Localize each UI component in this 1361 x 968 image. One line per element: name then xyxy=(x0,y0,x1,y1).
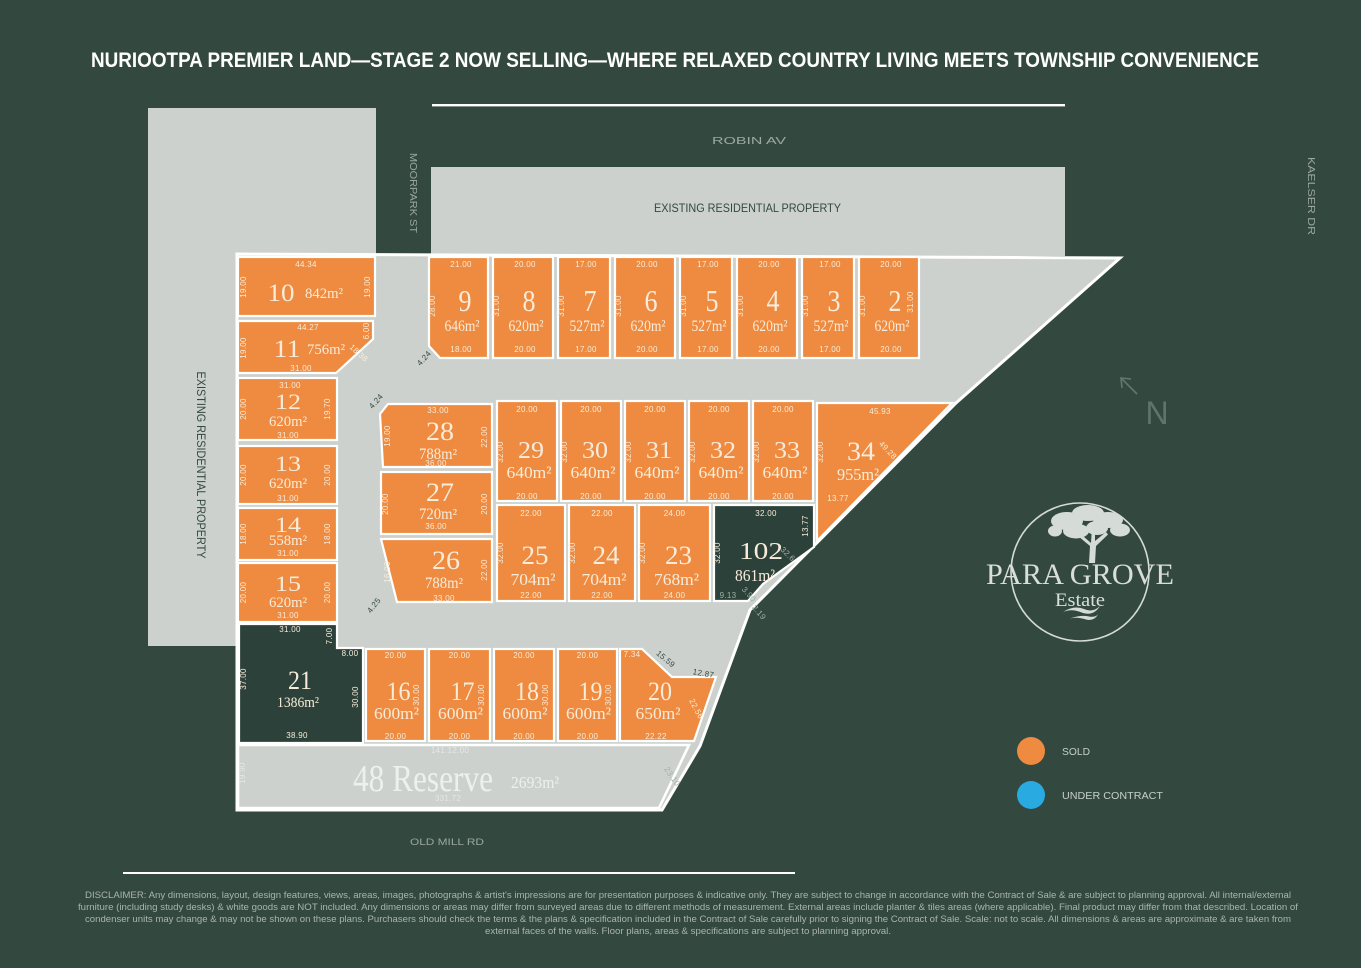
svg-text:20.00: 20.00 xyxy=(239,398,248,420)
svg-text:20.00: 20.00 xyxy=(758,345,780,354)
svg-text:NURIOOTPA PREMIER LAND—STAGE 2: NURIOOTPA PREMIER LAND—STAGE 2 NOW SELLI… xyxy=(91,48,1259,72)
svg-text:20.00: 20.00 xyxy=(480,493,489,515)
svg-text:19: 19 xyxy=(579,677,603,706)
svg-text:37.00: 37.00 xyxy=(239,668,248,690)
svg-text:640m²: 640m² xyxy=(699,463,744,482)
svg-text:31.00: 31.00 xyxy=(290,364,312,373)
svg-text:20.00: 20.00 xyxy=(239,464,248,486)
svg-text:32.00: 32.00 xyxy=(496,441,505,463)
svg-text:10: 10 xyxy=(268,280,295,307)
svg-text:31.00: 31.00 xyxy=(736,295,745,317)
svg-text:20.00: 20.00 xyxy=(516,405,538,414)
svg-text:620m²: 620m² xyxy=(269,476,308,492)
svg-text:17: 17 xyxy=(451,677,475,706)
svg-text:20.00: 20.00 xyxy=(449,732,471,741)
svg-text:19.00: 19.00 xyxy=(383,425,392,447)
svg-text:28: 28 xyxy=(426,417,454,446)
svg-text:13: 13 xyxy=(275,451,301,476)
svg-text:31.00: 31.00 xyxy=(492,295,501,317)
svg-text:32.00: 32.00 xyxy=(752,441,761,463)
svg-text:32.00: 32.00 xyxy=(688,441,697,463)
svg-text:704m²: 704m² xyxy=(511,570,556,589)
svg-text:24.00: 24.00 xyxy=(664,591,686,600)
svg-text:527m²: 527m² xyxy=(814,318,849,335)
svg-text:36.00: 36.00 xyxy=(425,459,447,468)
svg-text:36.00: 36.00 xyxy=(425,522,447,531)
svg-text:24.00: 24.00 xyxy=(664,509,686,518)
svg-text:31.00: 31.00 xyxy=(277,494,299,503)
svg-text:527m²: 527m² xyxy=(692,318,727,335)
svg-text:29: 29 xyxy=(518,438,544,464)
svg-text:27: 27 xyxy=(426,478,454,507)
svg-text:768m²: 768m² xyxy=(654,570,699,589)
svg-text:33.00: 33.00 xyxy=(427,406,449,415)
svg-text:22.22: 22.22 xyxy=(645,732,667,741)
svg-text:640m²: 640m² xyxy=(507,463,552,482)
svg-text:32.00: 32.00 xyxy=(560,441,569,463)
svg-text:20.00: 20.00 xyxy=(644,405,666,414)
svg-text:600m²: 600m² xyxy=(566,704,611,723)
svg-text:external faces of the walls. F: external faces of the walls. Floor plans… xyxy=(485,926,891,937)
svg-text:31.00: 31.00 xyxy=(858,295,867,317)
svg-text:20.00: 20.00 xyxy=(580,492,602,501)
svg-text:32.00: 32.00 xyxy=(755,509,777,518)
svg-text:22.00: 22.00 xyxy=(591,509,613,518)
svg-text:646m²: 646m² xyxy=(445,318,480,335)
svg-text:31.00: 31.00 xyxy=(906,291,915,313)
svg-text:19.90: 19.90 xyxy=(238,762,247,784)
svg-text:17.00: 17.00 xyxy=(819,345,841,354)
svg-text:9.13: 9.13 xyxy=(720,591,737,600)
svg-text:4: 4 xyxy=(767,283,780,318)
svg-text:23: 23 xyxy=(665,541,692,570)
svg-text:30.00: 30.00 xyxy=(541,684,550,706)
svg-text:45.93: 45.93 xyxy=(869,407,891,416)
svg-text:30.00: 30.00 xyxy=(604,684,613,706)
svg-text:31.00: 31.00 xyxy=(277,431,299,440)
svg-text:EXISTING RESIDENTIAL PROPERTY: EXISTING RESIDENTIAL PROPERTY xyxy=(654,203,841,215)
svg-text:20.00: 20.00 xyxy=(880,260,902,269)
svg-text:19.00: 19.00 xyxy=(363,276,372,298)
svg-text:13.77: 13.77 xyxy=(801,515,810,537)
svg-text:18: 18 xyxy=(515,677,539,706)
svg-text:MOORPARK ST: MOORPARK ST xyxy=(407,153,418,233)
svg-text:48 Reserve: 48 Reserve xyxy=(353,758,493,800)
svg-text:8: 8 xyxy=(523,283,536,318)
svg-text:20.00: 20.00 xyxy=(636,260,658,269)
svg-text:527m²: 527m² xyxy=(570,318,605,335)
svg-text:32.00: 32.00 xyxy=(496,542,505,564)
svg-text:28.00: 28.00 xyxy=(428,295,437,317)
svg-text:20.00: 20.00 xyxy=(385,732,407,741)
svg-text:EXISTING RESIDENTIAL PROPERTY: EXISTING RESIDENTIAL PROPERTY xyxy=(194,372,206,559)
svg-text:3: 3 xyxy=(828,283,841,318)
svg-text:7.34: 7.34 xyxy=(624,650,641,659)
svg-text:5: 5 xyxy=(706,283,719,318)
svg-text:33.00: 33.00 xyxy=(433,594,455,603)
svg-text:20.00: 20.00 xyxy=(323,581,332,603)
svg-text:620m²: 620m² xyxy=(269,414,308,430)
svg-text:31.00: 31.00 xyxy=(557,295,566,317)
svg-text:UNDER CONTRACT: UNDER CONTRACT xyxy=(1062,791,1163,802)
svg-text:furniture (including study des: furniture (including study desks) & whit… xyxy=(78,902,1298,913)
svg-text:22.00: 22.00 xyxy=(480,426,489,448)
svg-text:7.00: 7.00 xyxy=(325,627,334,644)
svg-text:18.00: 18.00 xyxy=(323,523,332,545)
svg-text:19.00: 19.00 xyxy=(239,337,248,359)
svg-text:20.00: 20.00 xyxy=(514,260,536,269)
svg-text:DISCLAIMER: Any dimensions, la: DISCLAIMER: Any dimensions, layout, desi… xyxy=(85,890,1291,901)
svg-text:620m²: 620m² xyxy=(269,595,308,611)
svg-text:31.00: 31.00 xyxy=(614,295,623,317)
svg-text:558m²: 558m² xyxy=(269,533,308,549)
svg-text:22.00: 22.00 xyxy=(591,591,613,600)
svg-text:44.27: 44.27 xyxy=(297,323,319,332)
svg-text:861m²: 861m² xyxy=(735,566,775,585)
svg-text:788m²: 788m² xyxy=(425,575,463,592)
svg-text:7: 7 xyxy=(584,283,597,318)
svg-text:31.00: 31.00 xyxy=(279,625,301,634)
svg-text:141.12.00: 141.12.00 xyxy=(431,746,470,755)
svg-text:26: 26 xyxy=(432,546,460,575)
svg-text:15: 15 xyxy=(275,571,301,596)
svg-text:20.00: 20.00 xyxy=(239,581,248,603)
svg-text:11: 11 xyxy=(274,336,301,363)
svg-text:20.00: 20.00 xyxy=(644,492,666,501)
svg-text:20: 20 xyxy=(648,677,672,706)
svg-text:32: 32 xyxy=(710,438,736,464)
svg-text:34: 34 xyxy=(847,437,875,466)
svg-text:30: 30 xyxy=(582,438,608,464)
svg-text:20.00: 20.00 xyxy=(514,345,536,354)
svg-text:6.00: 6.00 xyxy=(362,322,371,339)
svg-text:2: 2 xyxy=(889,283,902,318)
svg-text:640m²: 640m² xyxy=(635,463,680,482)
svg-text:22.00: 22.00 xyxy=(520,591,542,600)
svg-text:condenser units may change & m: condenser units may change & may not be … xyxy=(85,914,1291,925)
svg-text:22.00: 22.00 xyxy=(520,509,542,518)
svg-text:2693m²: 2693m² xyxy=(511,773,559,792)
svg-text:31.00: 31.00 xyxy=(277,549,299,558)
svg-text:756m²: 756m² xyxy=(307,342,345,358)
svg-text:20.00: 20.00 xyxy=(516,492,538,501)
svg-text:620m²: 620m² xyxy=(875,318,910,335)
svg-text:17.00: 17.00 xyxy=(697,345,719,354)
svg-text:31.00: 31.00 xyxy=(801,295,810,317)
svg-text:38.90: 38.90 xyxy=(286,731,308,740)
svg-text:20.00: 20.00 xyxy=(708,492,730,501)
svg-text:31.00: 31.00 xyxy=(679,295,688,317)
svg-text:N: N xyxy=(1145,395,1168,431)
svg-text:32.00: 32.00 xyxy=(713,542,722,564)
svg-text:17.00: 17.00 xyxy=(819,260,841,269)
svg-text:620m²: 620m² xyxy=(509,318,544,335)
svg-text:704m²: 704m² xyxy=(582,570,627,589)
svg-text:20.00: 20.00 xyxy=(772,405,794,414)
svg-text:12: 12 xyxy=(275,389,301,414)
svg-text:13.77: 13.77 xyxy=(827,494,849,503)
svg-text:30.00: 30.00 xyxy=(351,686,360,708)
svg-text:44.34: 44.34 xyxy=(295,260,317,269)
svg-text:640m²: 640m² xyxy=(571,463,616,482)
svg-text:KAELSER DR: KAELSER DR xyxy=(1305,157,1316,235)
svg-text:OLD MILL RD: OLD MILL RD xyxy=(410,837,484,848)
svg-text:30.00: 30.00 xyxy=(412,684,421,706)
svg-text:32.00: 32.00 xyxy=(568,542,577,564)
svg-text:21: 21 xyxy=(288,666,312,695)
svg-text:32.00: 32.00 xyxy=(624,441,633,463)
svg-text:24: 24 xyxy=(593,541,620,570)
svg-text:620m²: 620m² xyxy=(753,318,788,335)
svg-text:600m²: 600m² xyxy=(438,704,483,723)
svg-text:31.00: 31.00 xyxy=(277,611,299,620)
svg-text:19.70: 19.70 xyxy=(323,398,332,420)
svg-text:31: 31 xyxy=(646,438,672,464)
svg-text:25: 25 xyxy=(522,541,549,570)
svg-text:30.00: 30.00 xyxy=(477,684,486,706)
svg-text:640m²: 640m² xyxy=(763,463,808,482)
svg-text:955m²: 955m² xyxy=(837,465,879,484)
svg-text:8.00: 8.00 xyxy=(342,649,359,658)
svg-text:620m²: 620m² xyxy=(631,318,666,335)
svg-text:16: 16 xyxy=(387,677,411,706)
svg-text:102: 102 xyxy=(739,539,783,565)
svg-text:720m²: 720m² xyxy=(419,506,457,523)
svg-text:18.00: 18.00 xyxy=(450,345,472,354)
svg-text:19.00: 19.00 xyxy=(239,276,248,298)
svg-text:18.00: 18.00 xyxy=(239,523,248,545)
svg-text:650m²: 650m² xyxy=(636,704,681,723)
svg-text:1386m²: 1386m² xyxy=(277,695,319,711)
svg-text:20.00: 20.00 xyxy=(708,405,730,414)
svg-text:20.00: 20.00 xyxy=(636,345,658,354)
svg-text:16.00: 16.00 xyxy=(383,561,392,583)
svg-text:20.00: 20.00 xyxy=(577,732,599,741)
svg-text:20.00: 20.00 xyxy=(880,345,902,354)
svg-text:20.00: 20.00 xyxy=(580,405,602,414)
svg-text:32.00: 32.00 xyxy=(638,542,647,564)
svg-text:32.00: 32.00 xyxy=(816,441,825,463)
svg-text:20.00: 20.00 xyxy=(577,651,599,660)
svg-text:ROBIN AV: ROBIN AV xyxy=(712,135,786,147)
svg-text:17.00: 17.00 xyxy=(575,345,597,354)
svg-text:20.00: 20.00 xyxy=(758,260,780,269)
svg-text:20.00: 20.00 xyxy=(449,651,471,660)
svg-text:842m²: 842m² xyxy=(305,286,343,302)
svg-text:600m²: 600m² xyxy=(503,704,548,723)
svg-text:9: 9 xyxy=(459,283,472,318)
svg-text:22.00: 22.00 xyxy=(480,559,489,581)
svg-text:33: 33 xyxy=(774,438,800,464)
svg-text:20.00: 20.00 xyxy=(772,492,794,501)
svg-text:600m²: 600m² xyxy=(374,704,419,723)
svg-text:6: 6 xyxy=(645,283,658,318)
svg-text:17.00: 17.00 xyxy=(575,260,597,269)
svg-text:PARA GROVE: PARA GROVE xyxy=(986,558,1174,591)
svg-text:20.00: 20.00 xyxy=(513,651,535,660)
svg-text:20.00: 20.00 xyxy=(381,493,390,515)
svg-text:20.00: 20.00 xyxy=(385,651,407,660)
svg-text:21.00: 21.00 xyxy=(450,260,472,269)
svg-text:17.00: 17.00 xyxy=(697,260,719,269)
svg-text:20.00: 20.00 xyxy=(323,464,332,486)
svg-text:SOLD: SOLD xyxy=(1062,747,1090,758)
svg-text:20.00: 20.00 xyxy=(513,732,535,741)
